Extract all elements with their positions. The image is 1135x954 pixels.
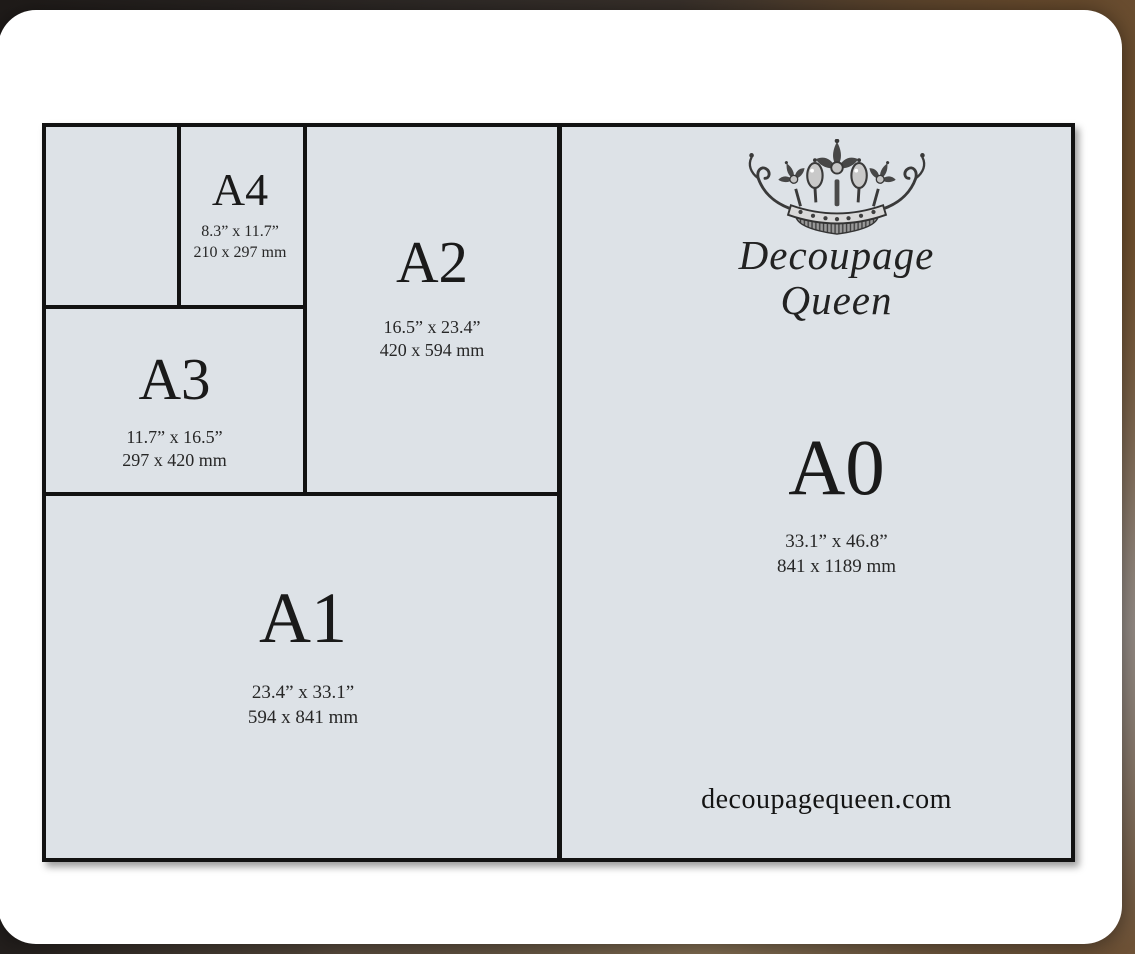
a0-cell: Decoupage Queen A0 33.1” x 46.8” 841 x 1… [562, 127, 1091, 858]
a2-mm: 420 x 594 mm [307, 339, 557, 362]
a4-mm: 210 x 297 mm [165, 243, 315, 264]
a2-cell: A2 16.5” x 23.4” 420 x 594 mm [307, 233, 557, 363]
paper-size-diagram: A4 8.3” x 11.7” 210 x 297 mm A2 16.5” x … [42, 123, 1075, 862]
a4-label: A4 [165, 167, 315, 213]
a0-label: A0 [788, 429, 885, 508]
a4-cell: A4 8.3” x 11.7” 210 x 297 mm [165, 167, 315, 264]
a0-inches: 33.1” x 46.8” [777, 530, 896, 555]
a0-mm: 841 x 1189 mm [777, 555, 896, 580]
blank-cell [46, 127, 177, 305]
crown-icon [737, 139, 937, 235]
a1-label: A1 [46, 582, 560, 654]
a1-inches: 23.4” x 33.1” [46, 681, 560, 706]
a3-cell: A3 11.7” x 16.5” 297 x 420 mm [46, 350, 303, 473]
a3-inches: 11.7” x 16.5” [46, 426, 303, 449]
a1-cell: A1 23.4” x 33.1” 594 x 841 mm [46, 582, 560, 730]
a4-inches: 8.3” x 11.7” [165, 222, 315, 243]
blank-cell-bottom-line [46, 305, 307, 309]
brand-name-line2: Queen [780, 280, 892, 321]
a3-label: A3 [46, 350, 303, 409]
a3-mm: 297 x 420 mm [46, 449, 303, 472]
brand-website: decoupagequeen.com [562, 784, 1091, 816]
a1-mm: 594 x 841 mm [46, 706, 560, 731]
a2-inches: 16.5” x 23.4” [307, 316, 557, 339]
brand-name-line1: Decoupage [739, 235, 935, 276]
a2-label: A2 [307, 233, 557, 292]
